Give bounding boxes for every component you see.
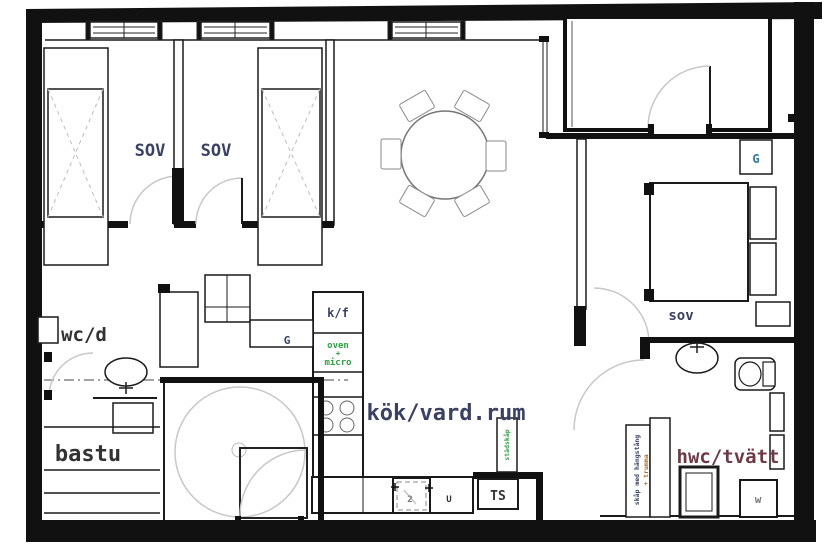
wc-shower-room: wc/d <box>38 317 157 433</box>
door-post <box>648 124 654 138</box>
kitchen: k/f oven + micro 2 U TS städskåp kök/var… <box>312 292 543 522</box>
sink-unit-mark: U <box>446 495 451 505</box>
balcony-door-opening <box>650 126 710 134</box>
wc-shower-label: wc/d <box>61 324 107 346</box>
chair <box>486 141 506 171</box>
door-post <box>44 390 52 400</box>
door-post <box>235 516 241 528</box>
wall-bedroom3-south <box>645 337 795 343</box>
laundry-shelf-note-1: skåp med hängstång <box>632 435 641 506</box>
wall-ts-east <box>536 472 543 522</box>
window-2 <box>197 21 274 40</box>
bathroom-label: hwc/tvätt <box>677 446 780 468</box>
laundry-shelf <box>650 418 670 517</box>
sauna-label: bastu <box>55 442 121 467</box>
wall-stub-bathroom <box>640 337 650 359</box>
pillow <box>750 187 776 239</box>
floor-plan-image: SOV SOV G <box>0 0 831 555</box>
bedroom-3: G sov <box>574 139 795 359</box>
window-1 <box>86 21 162 40</box>
bedroom-2-label: SOV <box>201 141 232 161</box>
door-arc-wc <box>49 353 93 397</box>
wall-cabinet <box>38 317 58 343</box>
door-arc-bedroom3 <box>594 288 649 343</box>
door-arc-bathroom <box>574 360 644 430</box>
door-post <box>706 124 712 138</box>
nightstand <box>756 302 790 326</box>
balcony <box>565 17 770 138</box>
door-arc-bedroom2 <box>196 178 242 224</box>
kitchen-living-label: kök/vard.rum <box>367 401 526 426</box>
partition-cap-top <box>539 36 549 42</box>
door-post <box>298 516 304 528</box>
washing-machine-label: w <box>755 493 762 506</box>
cleaning-cabinet-label: städskåp <box>502 429 511 460</box>
bedroom-3-label: sov <box>668 308 693 324</box>
wall-bottom <box>26 520 816 542</box>
wc-sink <box>105 358 147 386</box>
oven-label-3: micro <box>324 357 351 368</box>
windows-top <box>45 21 548 40</box>
door-arc-shower <box>240 450 306 516</box>
toilet-bowl <box>739 362 761 386</box>
bedroom-2: SOV <box>196 48 322 265</box>
door-post <box>44 352 52 362</box>
floor-plan-svg: SOV SOV G <box>0 0 831 555</box>
laundry-shelf-note-2: + trumma <box>642 454 650 485</box>
pillow <box>750 243 776 295</box>
wall-right <box>794 2 814 542</box>
wall-bedroom3-west <box>577 139 586 309</box>
chair <box>381 139 401 169</box>
hall-wardrobe <box>250 320 313 347</box>
bedroom-1-label: SOV <box>135 141 166 161</box>
window-3 <box>388 21 465 40</box>
dishwasher-mark: 2 <box>407 495 412 505</box>
wc-shelf <box>113 403 153 433</box>
wardrobe-bedroom3-label: G <box>752 152 759 166</box>
oven-label-2: + <box>336 349 341 358</box>
door-leaf-bedroom1 <box>172 168 184 224</box>
door-leaf-bedroom3 <box>574 306 586 346</box>
wall-shower-east <box>318 377 324 522</box>
wall-left <box>26 9 42 542</box>
wall-stub-right <box>788 114 796 122</box>
tall-cabinet <box>770 393 784 431</box>
hall-wardrobe-label: G <box>284 334 291 347</box>
balcony-outline <box>565 17 770 130</box>
bathroom-laundry: w skåp med hängstång + trumma hwc/tvätt <box>574 341 784 517</box>
door-arc-bedroom1 <box>130 176 178 224</box>
wall-ts-north <box>473 472 543 479</box>
cabinet-cap <box>158 284 170 293</box>
drying-cabinet-label: TS <box>490 489 506 504</box>
dining-table <box>401 111 489 199</box>
bed-3 <box>650 183 748 301</box>
bed-corner <box>644 289 654 301</box>
wall-bedroom2-living <box>326 40 334 225</box>
sauna-benches <box>44 427 160 513</box>
bed-corner <box>644 183 654 195</box>
wardrobe-2 <box>262 89 320 217</box>
hall-cabinet <box>160 292 198 367</box>
bedroom-1: SOV <box>44 48 184 265</box>
wall-shower-north <box>160 377 323 383</box>
fridge-freezer-label: k/f <box>327 306 349 320</box>
wardrobe-1 <box>48 89 103 217</box>
sauna: bastu <box>44 377 324 528</box>
toilet-tank <box>763 362 775 386</box>
dining-set <box>381 90 506 217</box>
